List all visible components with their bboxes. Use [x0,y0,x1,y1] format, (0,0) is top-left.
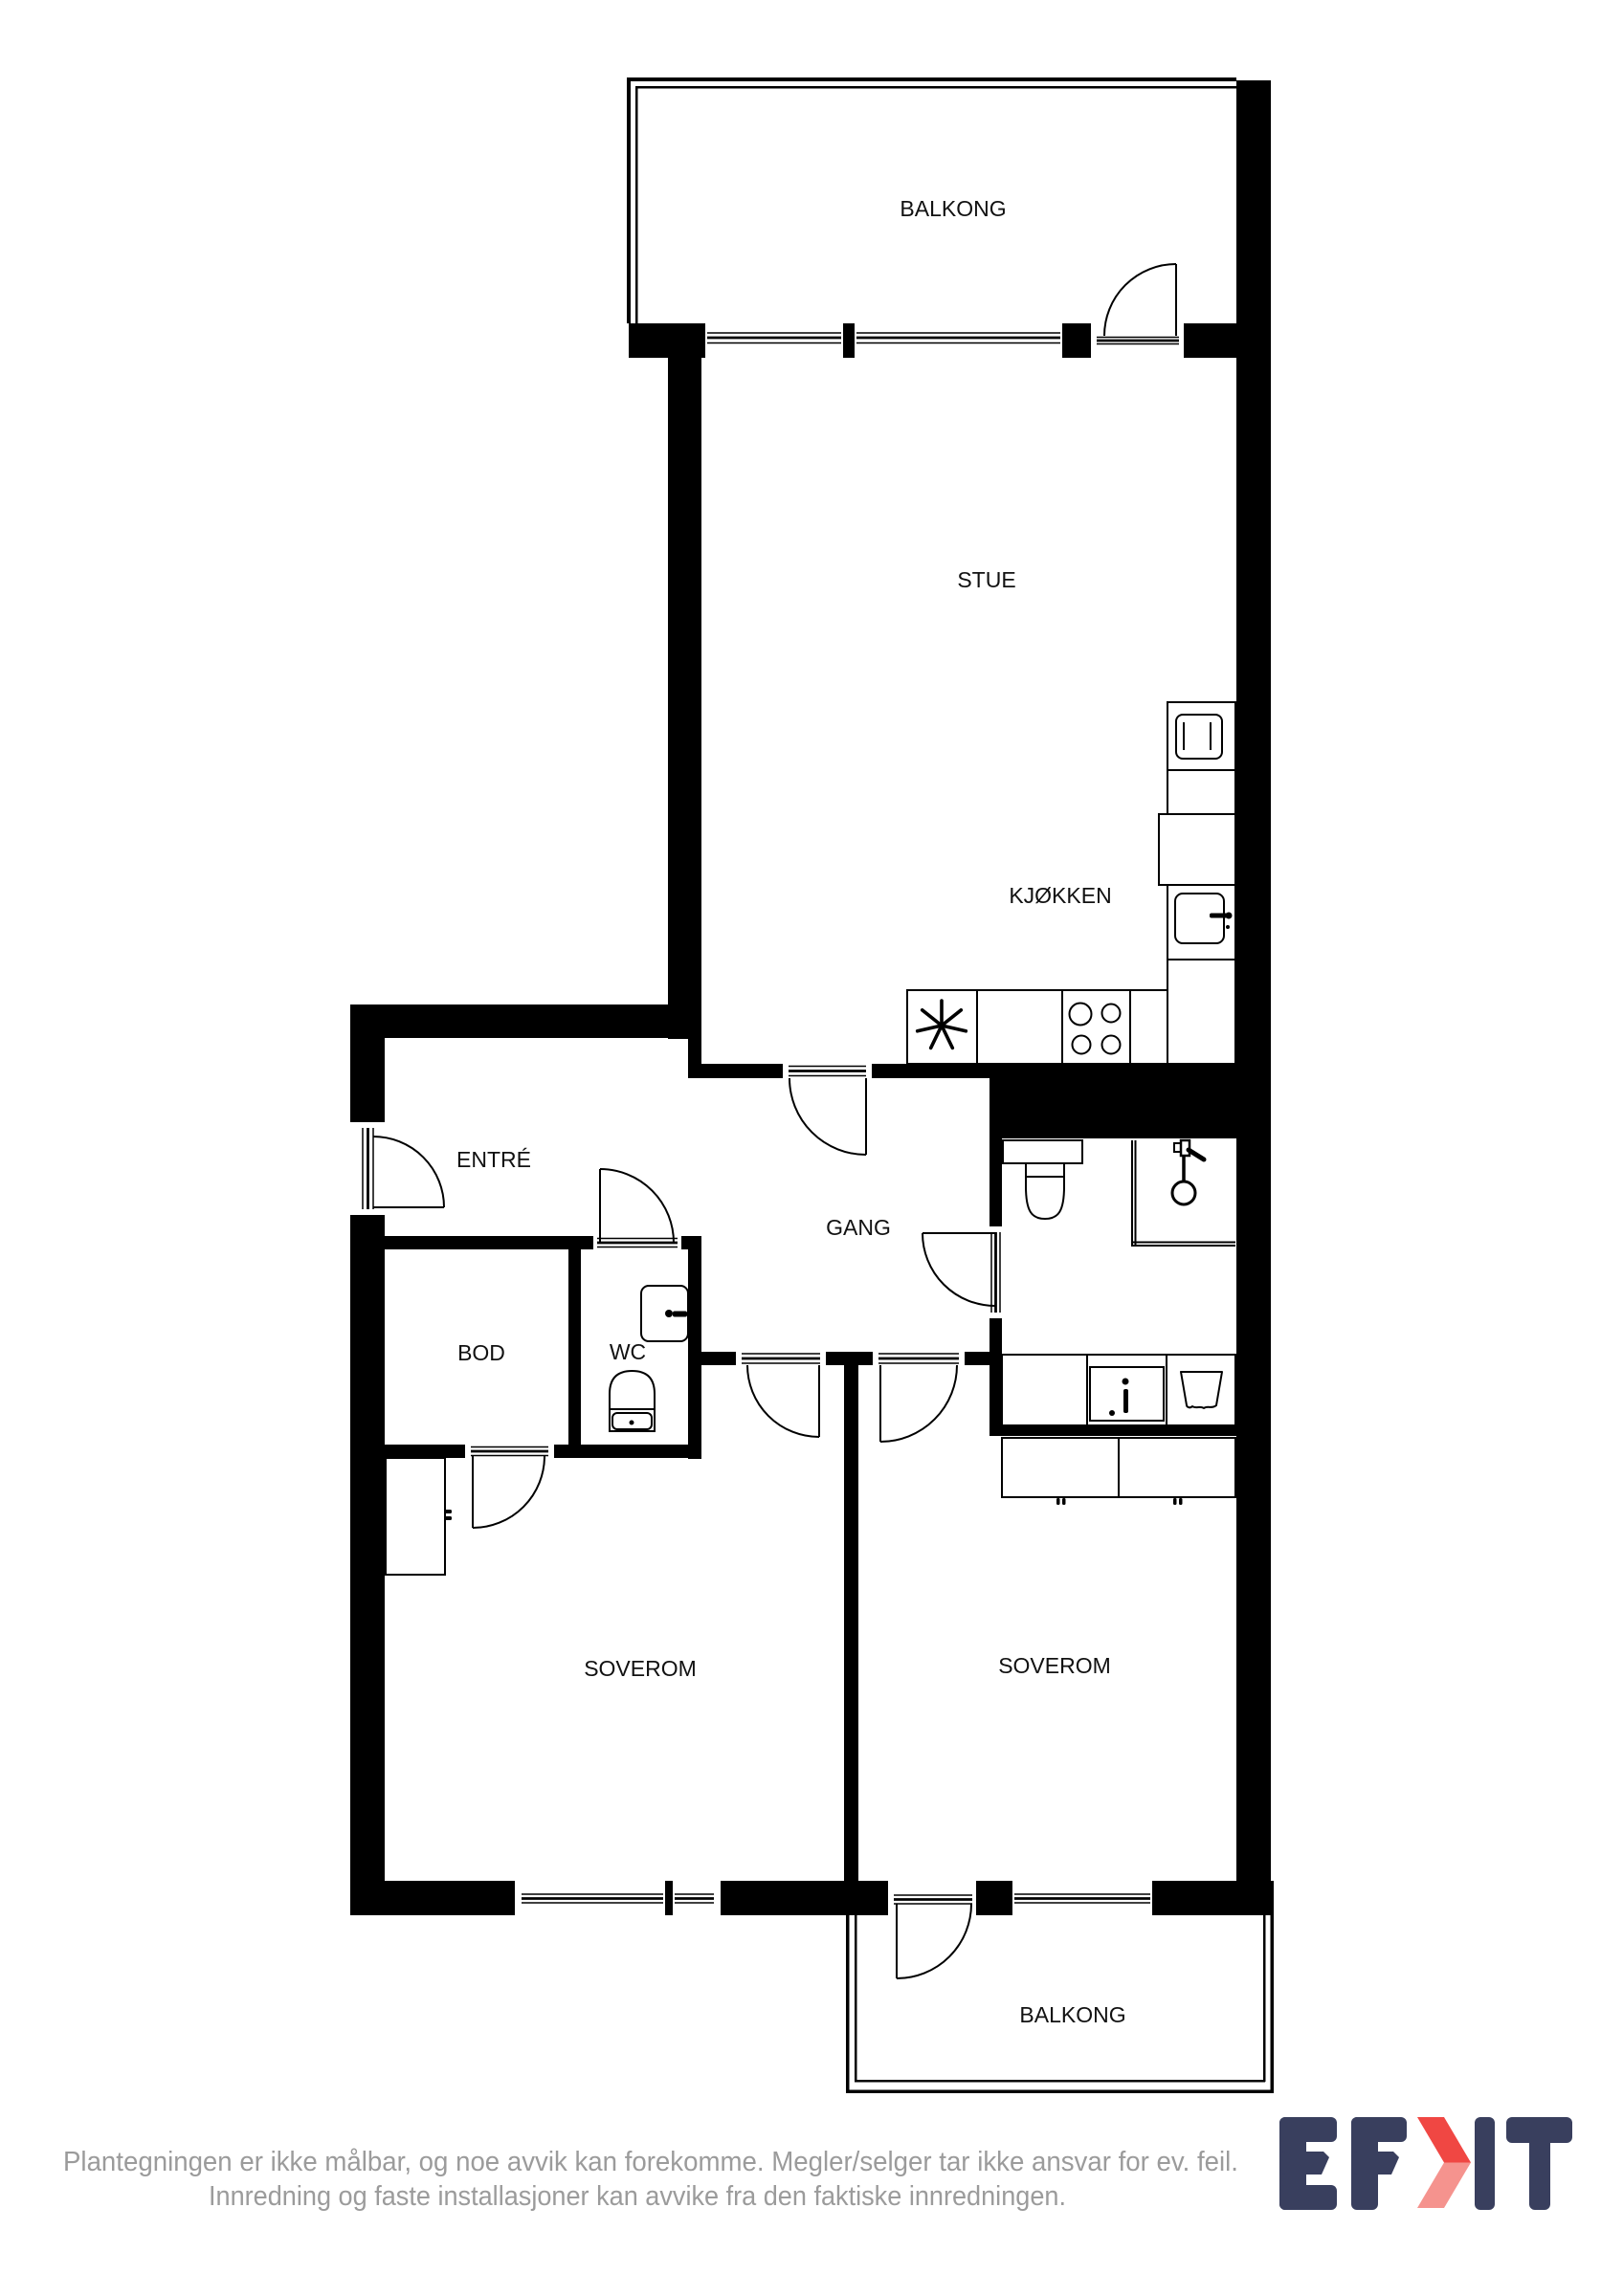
svg-text:STUE: STUE [957,567,1015,592]
svg-text:BALKONG: BALKONG [1019,2002,1125,2027]
svg-text:BOD: BOD [457,1340,505,1365]
svg-text:Innredning og faste installasj: Innredning og faste installasjoner kan a… [209,2181,1066,2212]
svg-text:SOVEROM: SOVEROM [584,1656,697,1681]
svg-text:BALKONG: BALKONG [900,196,1006,221]
svg-text:Plantegningen er ikke målbar,: Plantegningen er ikke målbar, og noe avv… [63,2147,1238,2177]
svg-text:KJØKKEN: KJØKKEN [1009,883,1111,908]
svg-text:WC: WC [610,1339,646,1364]
svg-text:GANG: GANG [826,1215,891,1240]
svg-text:ENTRÉ: ENTRÉ [456,1147,531,1172]
svg-text:SOVEROM: SOVEROM [998,1653,1111,1678]
